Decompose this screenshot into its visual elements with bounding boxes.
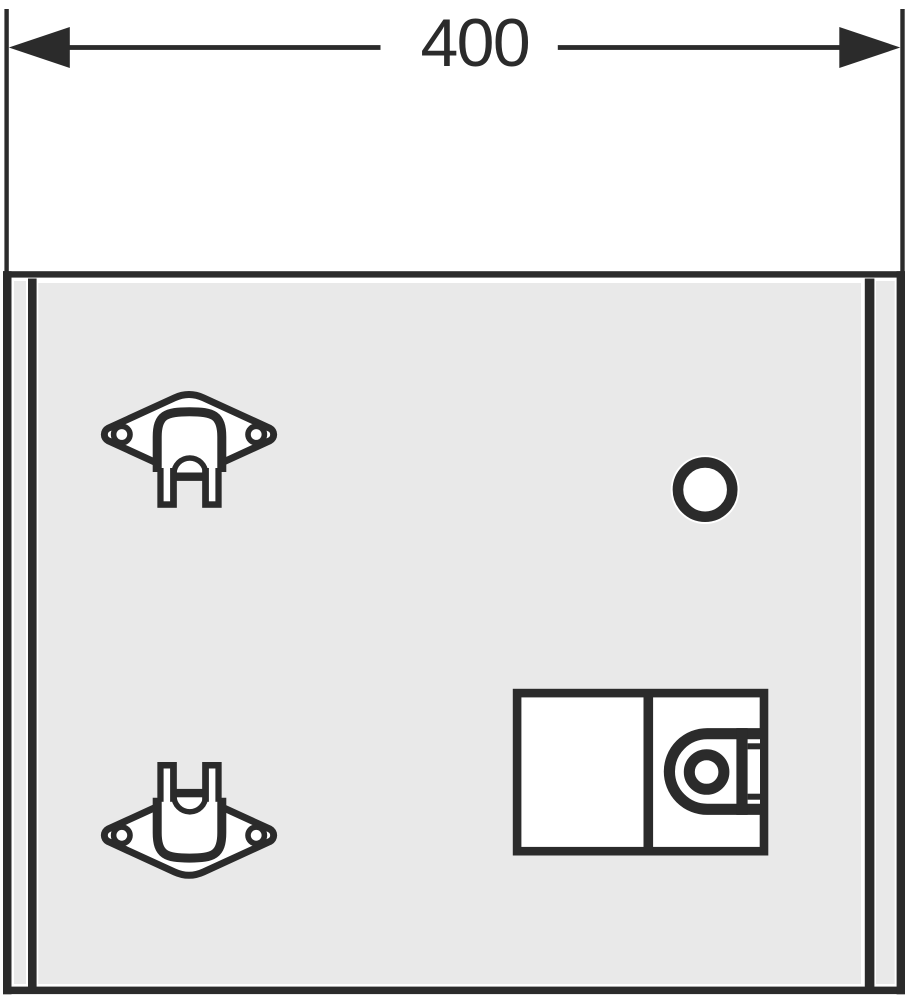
svg-text:400: 400 bbox=[420, 5, 529, 81]
